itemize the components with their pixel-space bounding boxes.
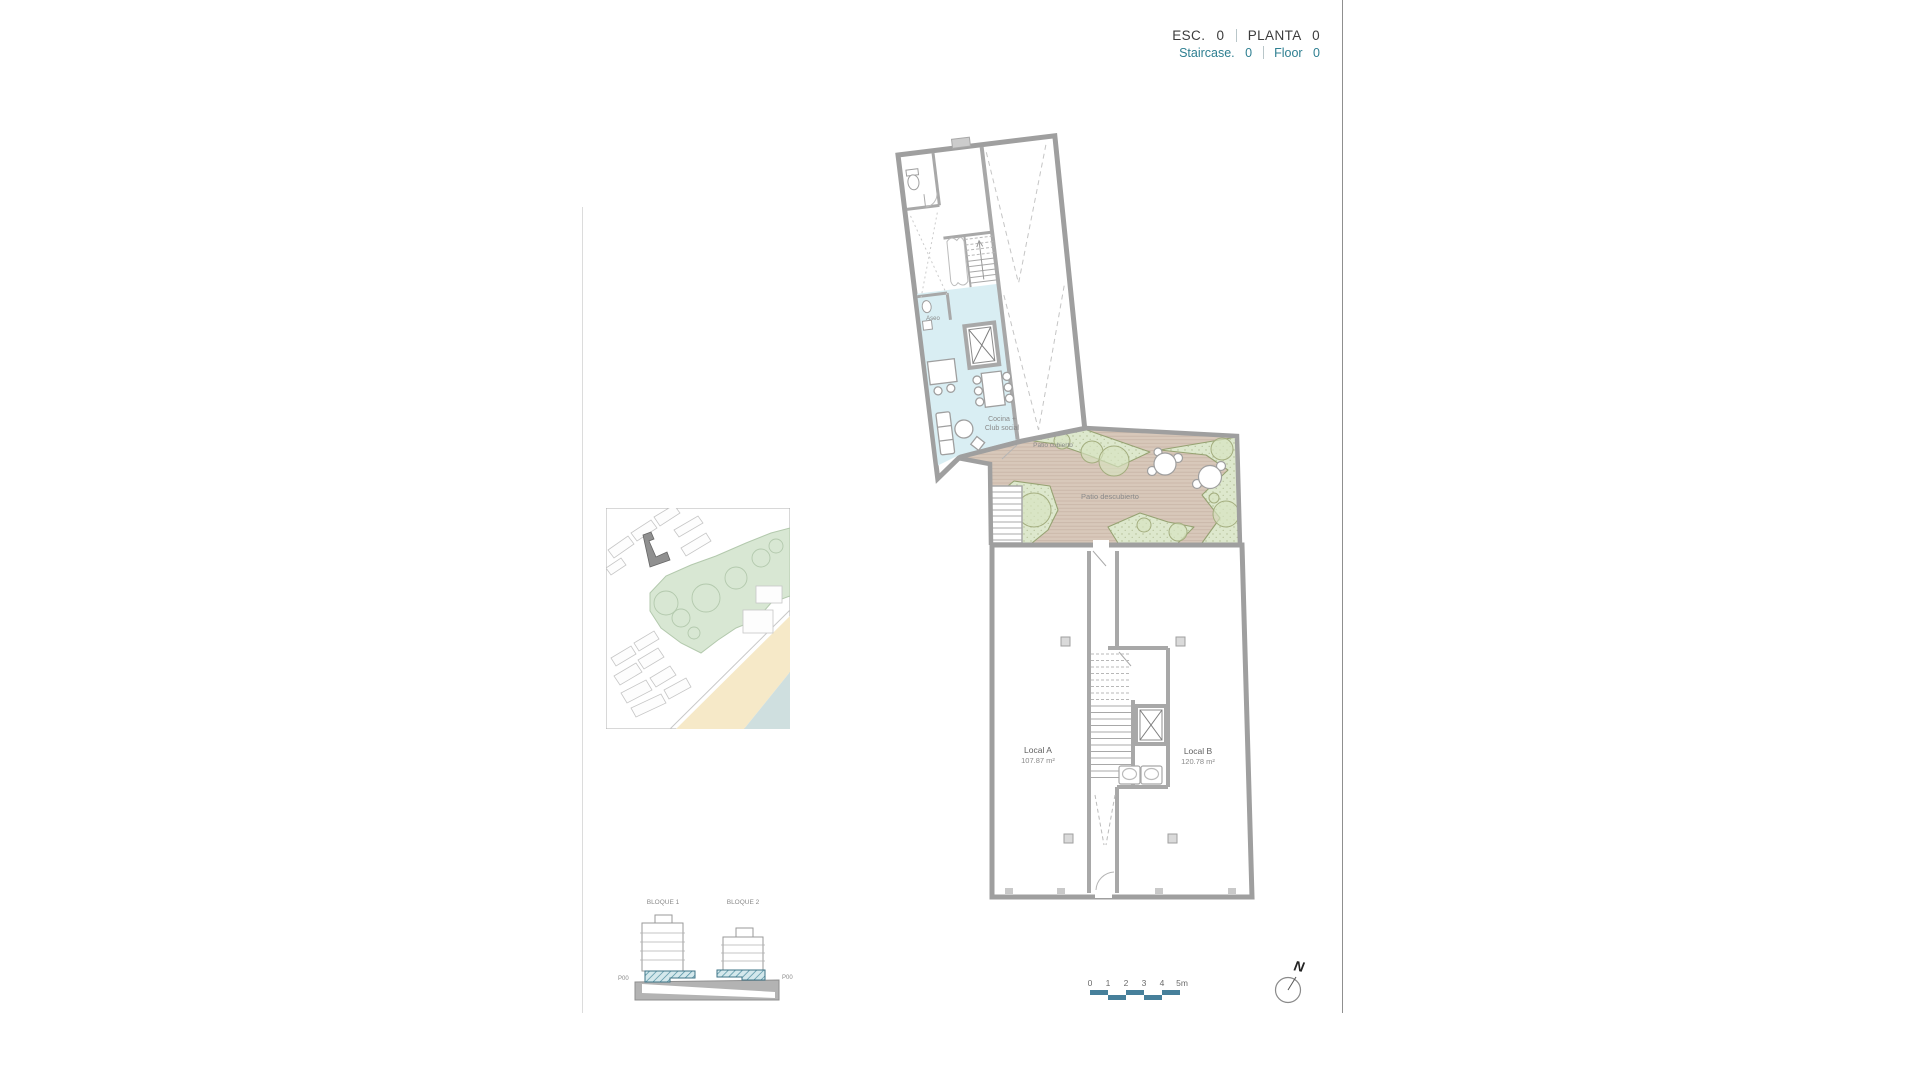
right-frame-line — [1342, 0, 1343, 1013]
scale-tick-3: 3 — [1142, 978, 1147, 988]
desk — [927, 359, 957, 385]
title-divider — [1236, 29, 1237, 42]
compass-needle-icon — [1288, 977, 1296, 990]
lower-block-outline — [992, 545, 1252, 897]
p00-left-label: P00 — [618, 976, 629, 982]
tower-bloque2 — [717, 928, 765, 980]
basin-bowl — [1123, 769, 1137, 780]
esc-label: ESC. — [1172, 28, 1205, 43]
floor-plan: Aseo Cocina + Club social Patio cubierto… — [880, 110, 1280, 920]
chair — [975, 397, 984, 406]
chair — [1002, 372, 1011, 381]
scale-segments — [1090, 990, 1180, 1000]
cocina-label-line1: Cocina + — [988, 416, 1016, 423]
highlighted-floor-2 — [717, 970, 765, 980]
roof-bump — [951, 137, 970, 148]
chair — [946, 384, 955, 393]
north-arrow: N — [1262, 952, 1322, 1012]
round-table — [1154, 453, 1176, 475]
chair — [973, 376, 982, 385]
tower-bloque1 — [640, 915, 695, 982]
patio-cubierto-label: Patio cubierto — [1033, 442, 1073, 449]
title-spanish: ESC. 0 PLANTA 0 — [1172, 28, 1320, 43]
local-a-area: 107.87 m² — [1021, 756, 1055, 765]
basin-bowl — [1145, 769, 1159, 780]
scale-tick-1: 1 — [1106, 978, 1111, 988]
entrance-gap — [1093, 540, 1109, 550]
p00-right-label: P00 — [782, 975, 793, 981]
left-frame-line — [582, 207, 583, 1013]
patio-descubierto-label: Patio descubierto — [1081, 492, 1139, 501]
bloque2-label: BLOQUE 2 — [727, 899, 760, 906]
scale-numbers: 0 1 2 3 4 5m — [1088, 978, 1188, 988]
chair — [1005, 394, 1014, 403]
core-elevator — [1136, 706, 1166, 744]
basins — [1119, 766, 1162, 784]
round-table — [1199, 466, 1222, 489]
highlighted-floor-1 — [645, 971, 695, 982]
exit-gap — [1095, 889, 1112, 898]
floor-label: Floor — [1274, 46, 1302, 60]
elevation-diagram: BLOQUE 1 BLOQUE 2 P00 P00 — [612, 888, 802, 1013]
floor-value: 0 — [1313, 46, 1320, 60]
sheet: ESC. 0 PLANTA 0 Staircase. 0 Floor 0 — [0, 0, 1920, 1080]
north-label: N — [1293, 957, 1307, 975]
local-a-label: Local A — [1024, 745, 1052, 755]
scale-tick-4: 4 — [1160, 978, 1165, 988]
dining-table — [981, 371, 1005, 407]
patio-stairs — [991, 486, 1022, 543]
scale-bar: 0 1 2 3 4 5m — [1080, 972, 1200, 1007]
bloque1-label: BLOQUE 1 — [647, 899, 680, 906]
staircase-value: 0 — [1245, 46, 1252, 60]
title-block: ESC. 0 PLANTA 0 Staircase. 0 Floor 0 — [1172, 28, 1320, 60]
planta-value: 0 — [1312, 28, 1320, 43]
scale-tick-5m: 5m — [1176, 978, 1188, 988]
cocina-label-line2: Club social — [985, 425, 1020, 432]
scale-tick-0: 0 — [1088, 978, 1093, 988]
location-map — [606, 508, 790, 729]
staircase-label: Staircase. — [1179, 46, 1235, 60]
elevator — [964, 323, 999, 368]
chair — [934, 386, 943, 395]
lower-block — [992, 540, 1252, 898]
title-english: Staircase. 0 Floor 0 — [1172, 46, 1320, 60]
chair — [974, 387, 983, 396]
chair — [1004, 383, 1013, 392]
local-b-label: Local B — [1184, 746, 1213, 756]
esc-value: 0 — [1217, 28, 1225, 43]
local-b-area: 120.78 m² — [1181, 757, 1215, 766]
title-divider-2 — [1263, 46, 1264, 59]
scale-tick-2: 2 — [1124, 978, 1129, 988]
planta-label: PLANTA — [1248, 28, 1301, 43]
aseo-label: Aseo — [926, 316, 940, 322]
